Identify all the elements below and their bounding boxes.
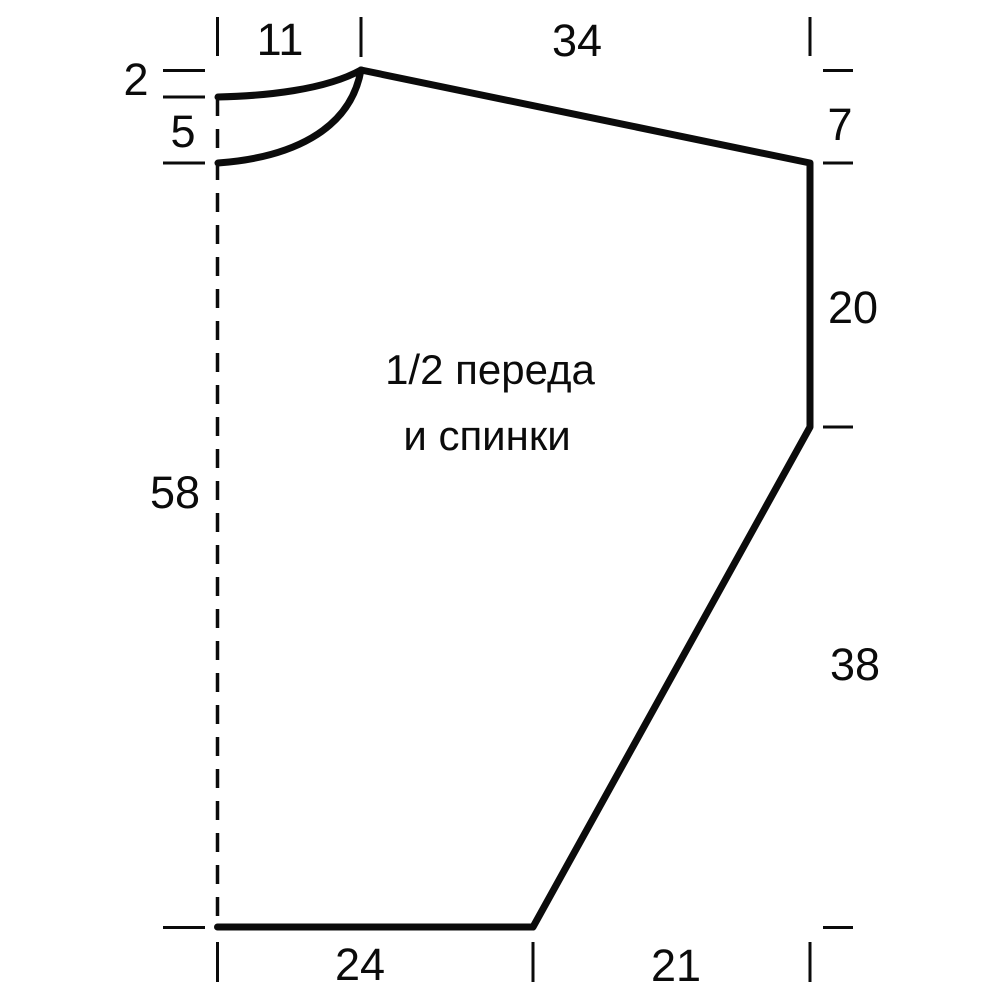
measurement-hem-width: 24: [335, 939, 385, 990]
measurement-neck-width: 11: [257, 14, 304, 65]
measurement-back-neck-depth: 2: [123, 54, 148, 105]
garment-outline: [218, 70, 811, 927]
piece-label-line1: 1/2 переда: [385, 346, 595, 393]
measurement-armhole-straight: 20: [828, 282, 878, 333]
measurement-front-neck-depth: 5: [170, 106, 195, 157]
pattern-diagram: 11 34 2 5 58 7 20 38 24 21 1/2 переда и …: [0, 0, 1000, 1000]
piece-label: 1/2 переда и спинки: [385, 346, 595, 459]
piece-label-line2: и спинки: [403, 412, 570, 459]
measurement-shoulder-drop: 7: [827, 99, 852, 150]
front-neckline-curve: [218, 70, 361, 163]
measurement-hem-to-side: 21: [651, 940, 701, 991]
measurement-side-slope: 38: [830, 639, 880, 690]
measurement-total-length: 58: [150, 467, 200, 518]
measurement-shoulder-line: 34: [552, 15, 602, 66]
pattern-diagram-page: 11 34 2 5 58 7 20 38 24 21 1/2 переда и …: [0, 0, 1000, 1000]
back-neckline-curve: [218, 70, 361, 97]
tick-marks: [163, 17, 853, 982]
